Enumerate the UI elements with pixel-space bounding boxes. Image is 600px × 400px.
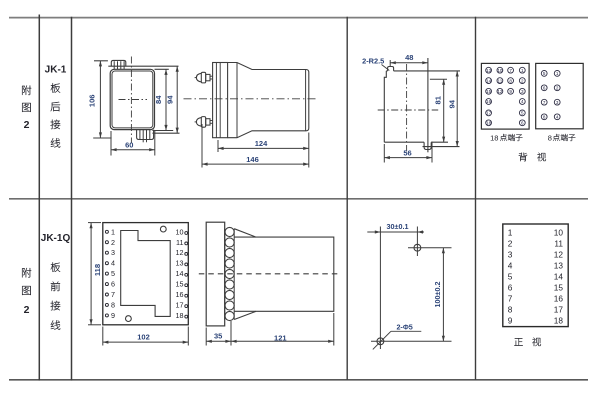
svg-text:15: 15 [486, 89, 492, 94]
svg-text:81: 81 [434, 95, 443, 104]
svg-text:13: 13 [554, 261, 564, 271]
svg-text:2: 2 [521, 78, 524, 83]
svg-text:60: 60 [125, 140, 133, 149]
svg-text:18: 18 [176, 311, 184, 320]
svg-text:8: 8 [111, 300, 115, 309]
svg-text:9: 9 [111, 311, 115, 320]
svg-text:2: 2 [24, 119, 30, 131]
svg-text:1: 1 [111, 227, 115, 236]
svg-text:121: 121 [274, 333, 287, 342]
svg-text:118: 118 [93, 264, 102, 276]
svg-text:9: 9 [508, 316, 513, 326]
svg-text:3: 3 [111, 248, 115, 257]
svg-text:1: 1 [556, 71, 559, 76]
svg-text:2-Φ5: 2-Φ5 [396, 323, 412, 332]
svg-text:3: 3 [521, 89, 524, 94]
svg-text:11: 11 [498, 78, 503, 83]
svg-text:106: 106 [88, 94, 97, 107]
svg-text:16: 16 [176, 290, 184, 299]
svg-text:7: 7 [509, 68, 512, 73]
svg-text:4: 4 [521, 99, 524, 104]
svg-text:13: 13 [486, 68, 492, 73]
svg-text:6: 6 [508, 283, 513, 293]
svg-text:2: 2 [508, 239, 513, 249]
svg-text:13: 13 [176, 259, 184, 268]
svg-text:5: 5 [111, 269, 115, 278]
svg-text:14: 14 [554, 272, 564, 282]
svg-text:18: 18 [486, 121, 492, 126]
svg-text:5: 5 [521, 111, 524, 116]
svg-text:102: 102 [137, 333, 150, 342]
svg-text:2-R2.5: 2-R2.5 [362, 56, 384, 65]
svg-text:17: 17 [486, 111, 492, 116]
svg-text:10: 10 [554, 228, 564, 238]
svg-text:17: 17 [176, 300, 184, 309]
svg-text:15: 15 [176, 280, 184, 289]
svg-text:30±0.1: 30±0.1 [387, 222, 409, 231]
svg-text:1: 1 [521, 68, 524, 73]
svg-text:5: 5 [508, 272, 513, 282]
svg-text:18: 18 [490, 133, 498, 142]
svg-text:2: 2 [111, 238, 115, 247]
svg-text:56: 56 [403, 149, 411, 158]
svg-text:100±0.2: 100±0.2 [433, 282, 442, 308]
svg-text:6: 6 [521, 121, 524, 126]
svg-text:8: 8 [548, 133, 552, 142]
svg-text:10: 10 [497, 68, 503, 73]
svg-text:16: 16 [554, 294, 564, 304]
svg-text:8: 8 [508, 305, 513, 315]
svg-text:2: 2 [556, 86, 559, 91]
svg-text:124: 124 [255, 139, 268, 148]
svg-text:3: 3 [556, 100, 559, 105]
svg-text:14: 14 [176, 269, 184, 278]
svg-text:35: 35 [214, 331, 222, 340]
svg-text:8: 8 [543, 115, 546, 120]
svg-text:48: 48 [405, 53, 413, 62]
svg-text:9: 9 [509, 89, 512, 94]
svg-text:4: 4 [111, 259, 115, 268]
svg-text:JK-1: JK-1 [45, 64, 67, 75]
svg-text:1: 1 [508, 228, 513, 238]
svg-text:4: 4 [556, 115, 559, 120]
svg-text:6: 6 [111, 280, 115, 289]
svg-text:7: 7 [508, 294, 513, 304]
svg-text:17: 17 [554, 305, 564, 315]
svg-text:8: 8 [509, 78, 512, 83]
svg-text:5: 5 [543, 71, 546, 76]
svg-text:15: 15 [554, 283, 564, 293]
svg-text:14: 14 [486, 78, 492, 83]
svg-text:11: 11 [554, 239, 563, 249]
svg-text:2: 2 [24, 304, 30, 316]
svg-text:12: 12 [554, 250, 564, 260]
svg-text:6: 6 [543, 86, 546, 91]
svg-text:16: 16 [486, 99, 492, 104]
svg-text:7: 7 [111, 290, 115, 299]
svg-text:3: 3 [508, 250, 513, 260]
svg-text:10: 10 [176, 227, 184, 236]
svg-text:12: 12 [497, 89, 503, 94]
svg-text:84: 84 [154, 95, 163, 104]
svg-text:7: 7 [543, 100, 546, 105]
svg-text:11: 11 [176, 238, 183, 247]
svg-text:146: 146 [246, 155, 259, 164]
svg-text:4: 4 [508, 261, 513, 271]
svg-text:94: 94 [448, 99, 457, 108]
svg-text:JK-1Q: JK-1Q [41, 233, 71, 244]
svg-text:12: 12 [176, 248, 184, 257]
svg-text:18: 18 [554, 316, 564, 326]
svg-text:94: 94 [165, 95, 174, 104]
